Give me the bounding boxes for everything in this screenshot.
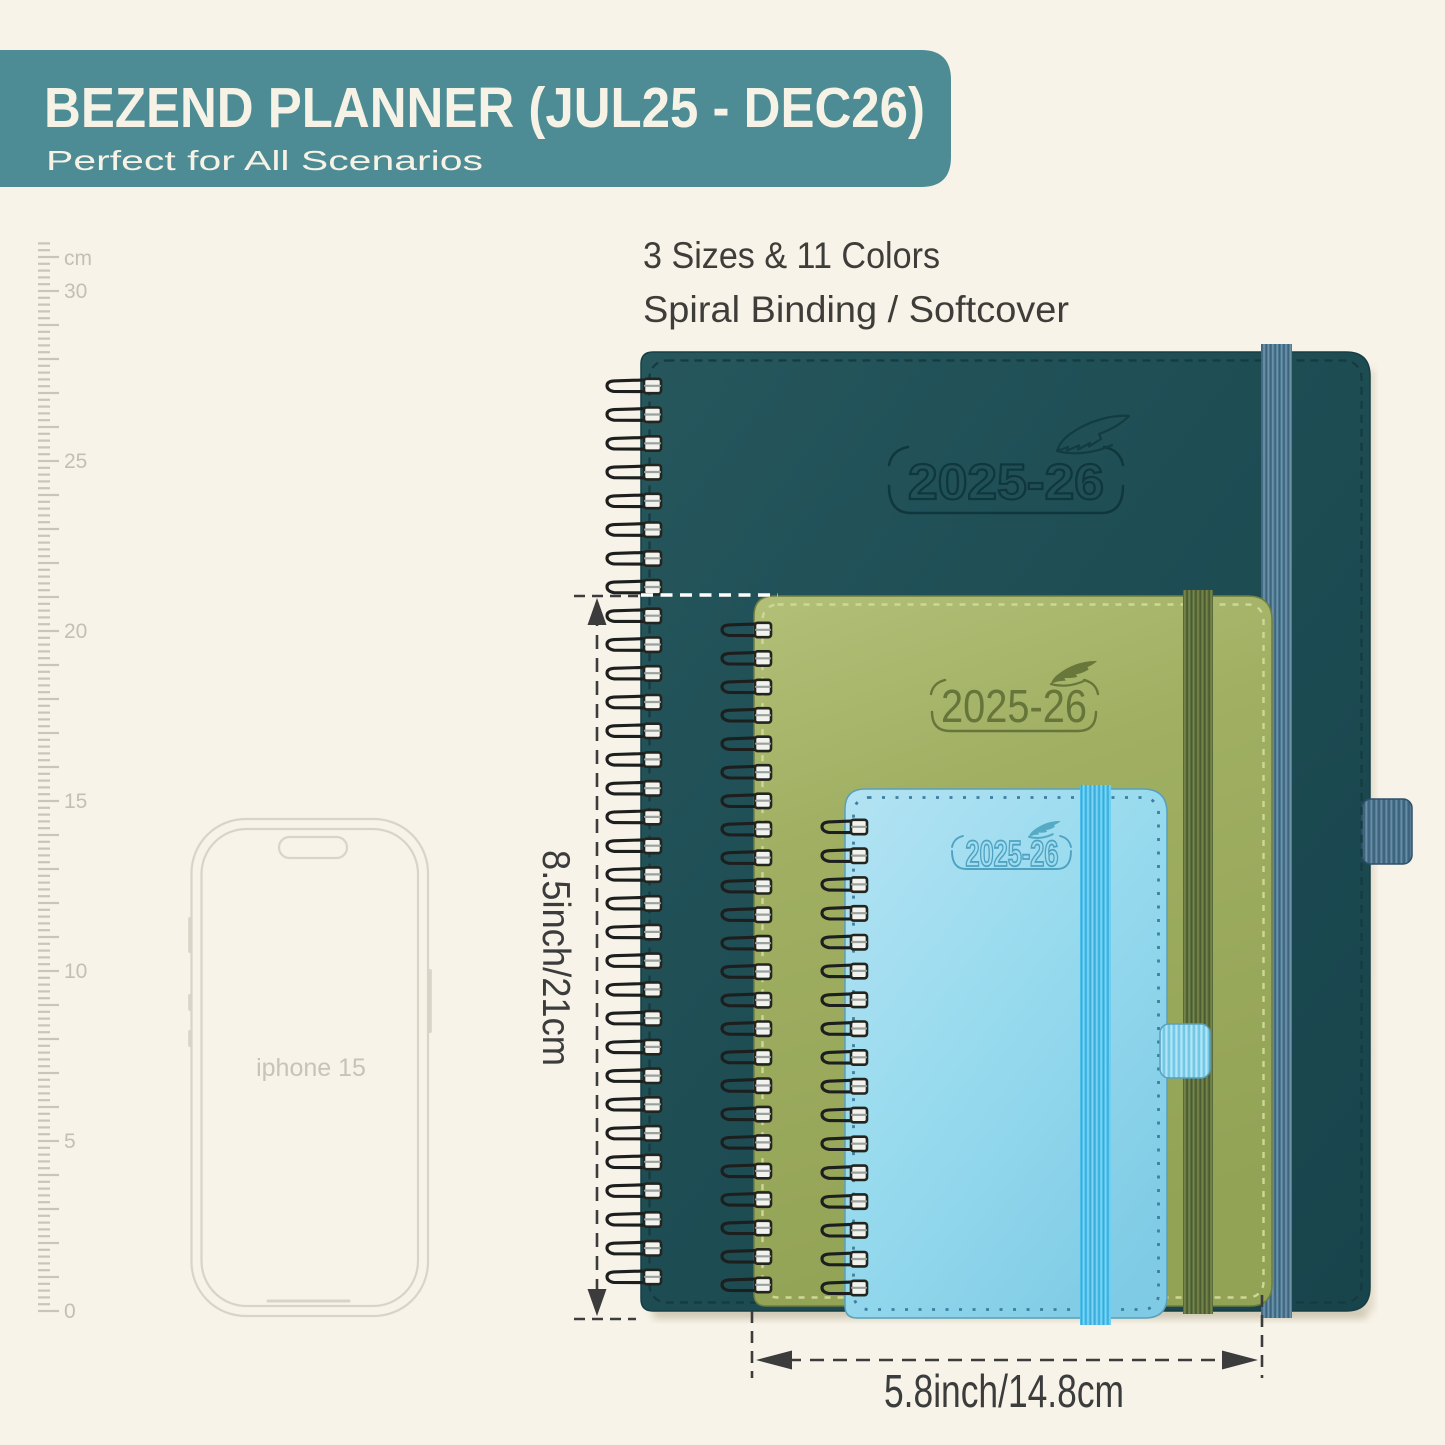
svg-text:8.5inch/21cm: 8.5inch/21cm	[534, 850, 577, 1066]
svg-text:iphone 15: iphone 15	[256, 1054, 366, 1082]
svg-text:5: 5	[64, 1130, 76, 1153]
svg-text:30: 30	[64, 280, 87, 303]
svg-text:0: 0	[64, 1300, 76, 1323]
svg-text:Perfect for All Scenarios: Perfect for All Scenarios	[46, 145, 483, 176]
svg-text:10: 10	[64, 960, 87, 983]
svg-text:BEZEND PLANNER (JUL25 - DEC26): BEZEND PLANNER (JUL25 - DEC26)	[44, 76, 925, 140]
svg-text:Spiral Binding / Softcover: Spiral Binding / Softcover	[643, 289, 1069, 330]
svg-text:5.8inch/14.8cm: 5.8inch/14.8cm	[884, 1365, 1124, 1417]
svg-text:2025-26: 2025-26	[966, 833, 1059, 874]
svg-text:2025-26: 2025-26	[908, 454, 1104, 510]
svg-text:15: 15	[64, 790, 87, 813]
svg-text:cm: cm	[64, 247, 92, 270]
svg-text:20: 20	[64, 620, 87, 643]
svg-text:2025-26: 2025-26	[941, 680, 1087, 732]
svg-text:25: 25	[64, 450, 87, 473]
svg-text:3 Sizes & 11 Colors: 3 Sizes & 11 Colors	[643, 235, 940, 276]
